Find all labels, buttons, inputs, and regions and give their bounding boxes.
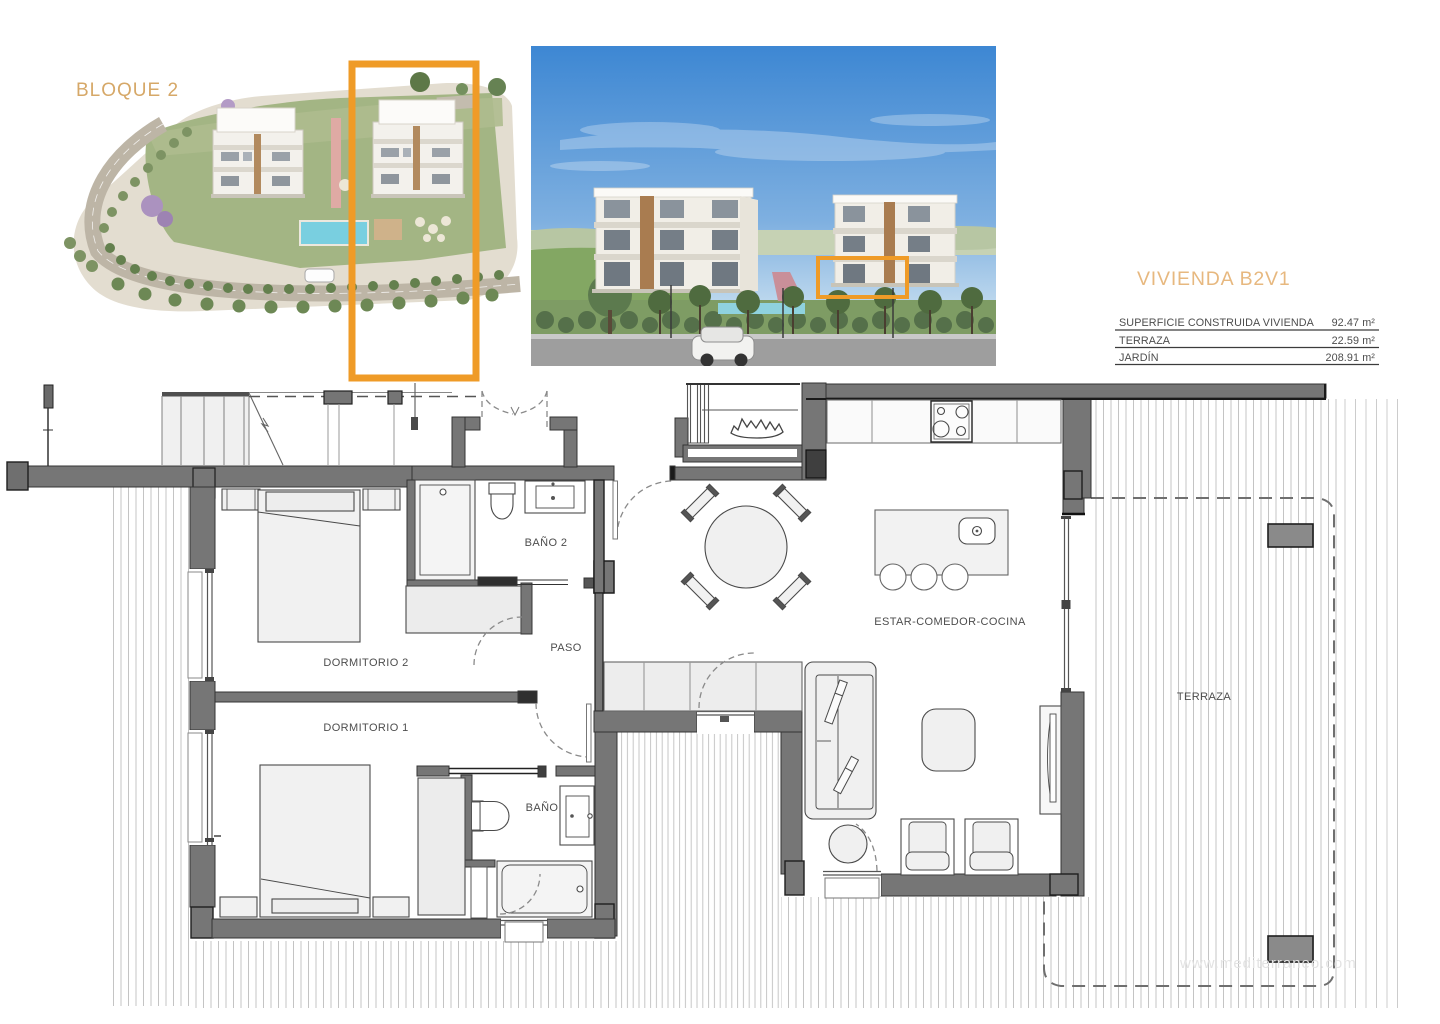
svg-text:SUPERFICIE CONSTRUIDA VIVIENDA: SUPERFICIE CONSTRUIDA VIVIENDA (1119, 317, 1315, 329)
svg-text:DORMITORIO 2: DORMITORIO 2 (323, 657, 408, 669)
svg-text:VIVIENDA B2V1: VIVIENDA B2V1 (1137, 268, 1290, 290)
svg-text:DORMITORIO 1: DORMITORIO 1 (323, 722, 408, 734)
svg-text:BAÑO: BAÑO (526, 801, 559, 814)
svg-text:PASO: PASO (550, 642, 581, 654)
svg-text:BLOQUE 2: BLOQUE 2 (76, 80, 179, 101)
svg-text:208.91 m²: 208.91 m² (1325, 352, 1375, 364)
svg-text:JARDÍN: JARDÍN (1119, 351, 1159, 364)
svg-text:BAÑO 2: BAÑO 2 (525, 536, 568, 549)
svg-text:ESTAR-COMEDOR-COCINA: ESTAR-COMEDOR-COCINA (874, 616, 1026, 628)
svg-text:22.59 m²: 22.59 m² (1332, 335, 1376, 347)
svg-text:www.mediterraneo.com: www.mediterraneo.com (1179, 955, 1357, 972)
svg-text:92.47 m²: 92.47 m² (1332, 317, 1376, 329)
svg-text:TERRAZA: TERRAZA (1177, 691, 1231, 703)
svg-text:TERRAZA: TERRAZA (1119, 335, 1171, 347)
